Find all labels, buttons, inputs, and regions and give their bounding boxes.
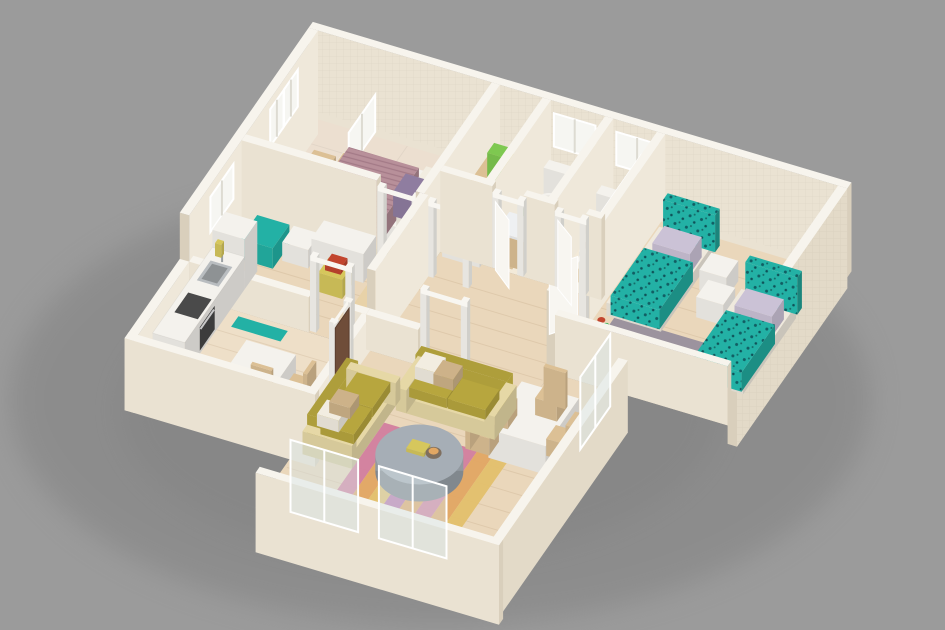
apartment-3d-floor-plan: [0, 0, 945, 630]
floor-plan-render-stage: [0, 0, 945, 630]
